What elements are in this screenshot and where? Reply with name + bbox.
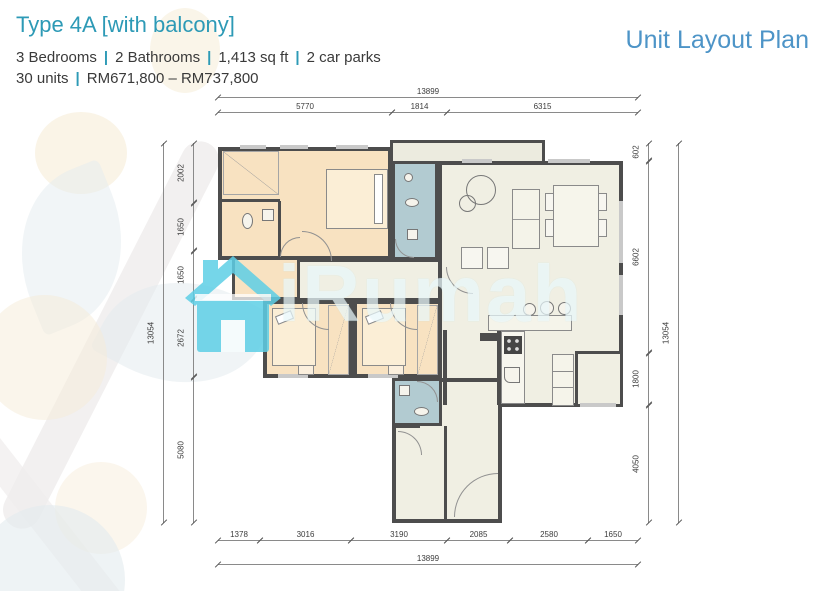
- spec-area: 1,413 sq ft: [218, 49, 288, 66]
- dim-bottom-seg: 1650: [588, 540, 638, 541]
- dim-bottom-seg: 2085: [447, 540, 510, 541]
- dim-right-seg: 1800: [648, 353, 649, 405]
- window: [462, 159, 492, 163]
- sofa: [512, 189, 540, 249]
- page-title: Unit Layout Plan: [626, 26, 809, 55]
- master-bed-pillows: [374, 174, 383, 224]
- nightstand: [388, 365, 404, 375]
- page: Type 4A [with balcony] 3 Bedrooms|2 Bath…: [0, 0, 825, 591]
- dim-top-total: 13899: [218, 97, 638, 98]
- sink-bowl: [558, 302, 571, 315]
- spec-bedrooms: 3 Bedrooms: [16, 49, 97, 66]
- sink-icon: [399, 385, 410, 396]
- bg-branch: [0, 408, 137, 591]
- master-wardrobe: [223, 151, 279, 195]
- bg-circle: [35, 112, 127, 194]
- nightstand: [298, 365, 314, 375]
- dining-table: [553, 185, 599, 247]
- wardrobe: [417, 305, 438, 375]
- bg-branch: [0, 135, 226, 535]
- window: [580, 403, 616, 407]
- bg-circle: [0, 295, 107, 420]
- kitchen-counter: [488, 315, 572, 331]
- price-range: RM671,800 – RM737,800: [87, 70, 259, 87]
- dim-left-total: 13054: [163, 143, 164, 523]
- armchair: [461, 247, 483, 269]
- wall: [444, 426, 447, 521]
- toilet-icon: [242, 213, 253, 229]
- wall: [443, 330, 447, 405]
- units-count: 30 units: [16, 70, 69, 87]
- armchair: [487, 247, 509, 269]
- dim-left-seg: 1650: [193, 203, 194, 251]
- dim-bottom-seg: 1378: [218, 540, 260, 541]
- dim-top-seg: 5770: [218, 112, 392, 113]
- dim-left-seg: 2002: [193, 143, 194, 203]
- spec-bathrooms: 2 Bathrooms: [115, 49, 200, 66]
- dim-top-seg: 6315: [447, 112, 638, 113]
- unit-availability-price: 30 units|RM671,800 – RM737,800: [16, 70, 259, 87]
- unit-specs: 3 Bedrooms|2 Bathrooms|1,413 sq ft|2 car…: [16, 49, 381, 66]
- dim-bottom-seg: 3190: [351, 540, 447, 541]
- bg-circle: [55, 462, 147, 554]
- dim-left-seg: 1650: [193, 251, 194, 299]
- dim-bottom-seg: 3016: [260, 540, 351, 541]
- separator: |: [207, 49, 211, 66]
- window: [336, 145, 368, 149]
- dining-chair: [545, 193, 554, 211]
- shower-icon: [404, 173, 413, 182]
- wardrobe: [328, 305, 349, 375]
- sink-icon: [262, 209, 274, 221]
- separator: |: [104, 49, 108, 66]
- spec-carparks: 2 car parks: [307, 49, 381, 66]
- dim-left-seg: 5080: [193, 377, 194, 523]
- dim-right-seg: 4050: [648, 405, 649, 523]
- decor-circle: [459, 195, 476, 212]
- stove-icon: [504, 336, 522, 354]
- sink-bowl: [540, 301, 554, 315]
- dining-chair: [545, 219, 554, 237]
- wall: [220, 199, 280, 202]
- window: [619, 275, 623, 315]
- dim-left-seg: 2672: [193, 299, 194, 377]
- corridor: [298, 260, 443, 300]
- separator: |: [76, 70, 80, 87]
- window: [280, 145, 308, 149]
- master-hallway: [232, 257, 300, 300]
- window: [619, 201, 623, 263]
- dim-right-total: 13054: [678, 143, 679, 523]
- dim-right-seg: 602: [648, 143, 649, 161]
- wall: [480, 333, 499, 341]
- window: [240, 145, 266, 149]
- dim-top-seg: 1814: [392, 112, 447, 113]
- dim-bottom-seg: 2580: [510, 540, 588, 541]
- dim-bottom-total: 13899: [218, 564, 638, 565]
- floor-plan: [218, 143, 638, 523]
- dim-right-seg: 6602: [648, 161, 649, 353]
- appliance-icon: [504, 367, 520, 383]
- unit-type-title: Type 4A [with balcony]: [16, 12, 235, 38]
- dining-chair: [598, 219, 607, 237]
- wall: [392, 424, 420, 428]
- window: [548, 159, 590, 163]
- sink-bowl: [523, 303, 536, 316]
- cabinet-shelves: [552, 354, 574, 406]
- toilet-icon: [405, 198, 419, 207]
- separator: |: [295, 49, 299, 66]
- dining-chair: [598, 193, 607, 211]
- yard: [575, 351, 623, 407]
- bg-leaf: [0, 159, 152, 337]
- bg-circle: [0, 505, 125, 591]
- toilet-icon: [414, 407, 429, 416]
